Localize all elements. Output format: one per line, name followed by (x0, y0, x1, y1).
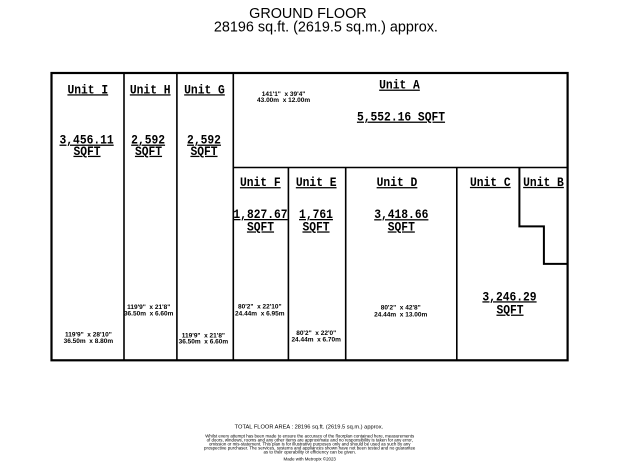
svg-text:24.44m x 6.70m: 24.44m x 6.70m (291, 336, 341, 343)
svg-text:24.44m x 6.95m: 24.44m x 6.95m (235, 311, 285, 318)
svg-text:Unit E: Unit E (296, 175, 337, 190)
svg-text:24.44m x 13.00m: 24.44m x 13.00m (374, 311, 427, 318)
svg-text:SQFT: SQFT (302, 219, 329, 234)
svg-text:Unit D: Unit D (377, 175, 418, 190)
svg-text:36.50m x 6.60m: 36.50m x 6.60m (179, 339, 229, 346)
svg-text:5,552.16 SQFT: 5,552.16 SQFT (357, 110, 445, 125)
svg-text:43.00m x 12.00m: 43.00m x 12.00m (257, 97, 310, 104)
svg-text:as to their operability or eff: as to their operability or efficiency ca… (263, 450, 355, 455)
svg-text:SQFT: SQFT (190, 144, 217, 159)
svg-text:SQFT: SQFT (388, 219, 415, 234)
svg-text:TOTAL FLOOR AREA : 28196 sq.ft: TOTAL FLOOR AREA : 28196 sq.ft. (2619.5 … (235, 425, 384, 431)
svg-text:SQFT: SQFT (247, 219, 274, 234)
svg-text:Unit H: Unit H (130, 82, 171, 97)
svg-text:SQFT: SQFT (73, 144, 100, 159)
svg-text:28196 sq.ft. (2619.5 sq.m.) ap: 28196 sq.ft. (2619.5 sq.m.) approx. (214, 20, 438, 36)
svg-text:Unit C: Unit C (470, 175, 511, 190)
svg-text:Unit B: Unit B (523, 175, 564, 190)
svg-text:Unit A: Unit A (379, 78, 420, 93)
svg-text:Unit F: Unit F (240, 175, 281, 190)
svg-text:SQFT: SQFT (496, 303, 523, 318)
svg-text:Unit G: Unit G (184, 82, 225, 97)
svg-text:36.50m x 6.60m: 36.50m x 6.60m (124, 311, 174, 318)
svg-text:SQFT: SQFT (135, 144, 162, 159)
svg-text:Unit I: Unit I (67, 82, 108, 97)
svg-text:Made with Metropix ©2023: Made with Metropix ©2023 (284, 456, 337, 461)
svg-text:36.50m x 8.80m: 36.50m x 8.80m (64, 338, 114, 345)
